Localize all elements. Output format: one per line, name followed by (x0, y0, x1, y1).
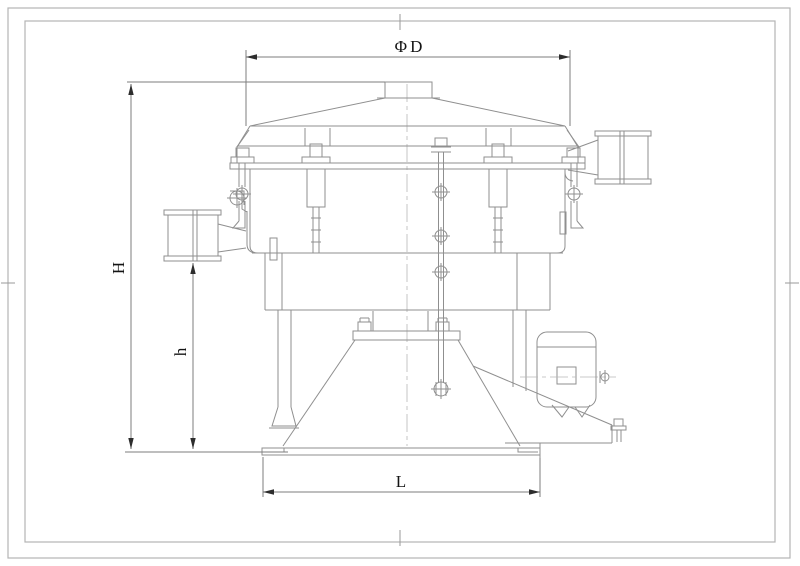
clamp-outer-left (231, 130, 254, 228)
vibration-motor (520, 332, 616, 417)
rod-nut-2 (432, 227, 450, 245)
lower-housing (265, 253, 550, 310)
clamp-flange-ring (230, 163, 585, 169)
clamp-bolt-inner-left (302, 144, 330, 253)
drawing-sheet: ΦD H h L (0, 0, 800, 566)
outlet-height-label: h (171, 347, 190, 356)
dimension-total-height: H (109, 82, 385, 452)
arrowhead (190, 438, 195, 449)
outlet-left (164, 203, 255, 261)
support-leg-right (513, 310, 526, 391)
outlet-left-clamp (227, 188, 247, 208)
lid-cone (237, 98, 578, 163)
total-height-label: H (109, 262, 128, 274)
rod-nut-1 (432, 183, 450, 201)
base-plate (262, 443, 540, 458)
arrowhead (128, 84, 133, 95)
base-cone (283, 340, 520, 446)
screen-drum (250, 169, 566, 260)
dimension-base-length: L (263, 457, 540, 497)
arrowhead (529, 489, 540, 494)
lid-bracket-right (486, 128, 511, 146)
top-inlet-cap (377, 82, 440, 98)
arrowhead (559, 54, 570, 59)
arrowhead (246, 54, 257, 59)
arrowhead (263, 489, 274, 494)
clamp-bolt-inner-right (484, 144, 512, 253)
support-leg-left (269, 310, 299, 428)
motor-terminal-box (557, 367, 576, 384)
rod-nut-4 (431, 379, 451, 399)
arrowhead (190, 263, 195, 274)
arrowhead (128, 438, 133, 449)
vibrating-sifter-drawing: ΦD H h L (0, 0, 800, 566)
front-clamp-rod (431, 138, 451, 399)
diameter-label: ΦD (395, 37, 426, 56)
rod-nut-3 (432, 263, 450, 281)
dimension-outlet-height: h (171, 263, 196, 449)
base-length-label: L (396, 472, 406, 491)
lid-bracket-left (305, 128, 330, 146)
